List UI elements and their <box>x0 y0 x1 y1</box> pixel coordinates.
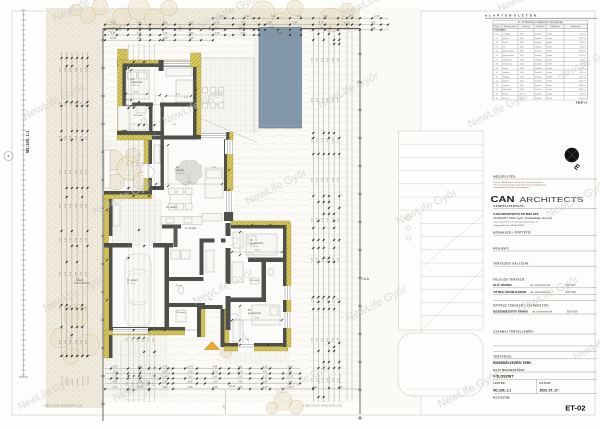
svg-text:4,86: 4,86 <box>111 27 116 30</box>
svg-text:DÁTUM:: DÁTUM: <box>540 382 552 385</box>
svg-text:12,70: 12,70 <box>237 371 244 374</box>
svg-text:nappali: nappali <box>176 169 184 172</box>
svg-text:gyerekszoba: gyerekszoba <box>503 50 515 53</box>
svg-text:oldalkert: oldalkert <box>76 378 79 386</box>
svg-text:12,70: 12,70 <box>187 366 194 369</box>
svg-text:4,05: 4,05 <box>137 37 142 40</box>
svg-text:2,35: 2,35 <box>113 376 118 379</box>
svg-text:4,05: 4,05 <box>163 386 168 389</box>
svg-text:Helyiség neve: Helyiség neve <box>504 26 516 28</box>
svg-text:12. étkező: 12. étkező <box>166 206 177 209</box>
svg-text:CAN: CAN <box>491 195 515 204</box>
svg-text:Falburkolat: Falburkolat <box>550 25 560 28</box>
svg-text:2,65 m²: 2,65 m² <box>580 93 587 96</box>
svg-text:08.: 08. <box>496 64 499 66</box>
svg-text:5,06 m²: 5,06 m² <box>580 33 587 36</box>
svg-text:laminált: laminált <box>535 41 542 44</box>
svg-text:3,00: 3,00 <box>520 85 524 87</box>
svg-text:laminált: laminált <box>535 45 542 48</box>
svg-text:festett: festett <box>547 63 553 66</box>
svg-text:laminált: laminált <box>535 50 542 53</box>
svg-text:HUNGARY 9021 Győr, Szabadsajtó: HUNGARY 9021 Győr, Szabadsajtó utca 2C <box>493 216 553 220</box>
svg-text:2,90: 2,90 <box>293 22 298 25</box>
svg-text:4,05: 4,05 <box>213 366 218 369</box>
svg-text:3,00: 3,00 <box>520 68 524 70</box>
svg-text:laminált: laminált <box>535 67 542 70</box>
svg-text:épülethatár: épülethatár <box>81 375 84 386</box>
svg-text:3,00: 3,00 <box>520 42 524 44</box>
svg-text:12,70: 12,70 <box>318 27 325 30</box>
svg-text:laminált: laminált <box>535 88 542 91</box>
svg-text:I A-A: I A-A <box>76 278 84 282</box>
svg-text:wc: wc <box>503 46 505 48</box>
svg-text:festett: festett <box>547 97 553 100</box>
svg-text:2,40: 2,40 <box>245 15 250 18</box>
svg-text:7,60: 7,60 <box>238 381 243 384</box>
svg-text:3,00: 3,00 <box>520 59 524 61</box>
svg-text:2,90: 2,90 <box>323 15 328 18</box>
svg-text:11,92 m²: 11,92 m² <box>579 80 587 83</box>
svg-text:festett: festett <box>547 67 553 70</box>
svg-text:laminált: laminált <box>535 58 542 61</box>
svg-text:06.: 06. <box>250 240 254 242</box>
svg-text:közlekedő: közlekedő <box>503 59 512 61</box>
svg-text:laminált: laminált <box>535 97 542 100</box>
svg-text:nappali: nappali <box>503 85 510 87</box>
svg-text:11. konyha: 11. konyha <box>185 228 197 230</box>
svg-text:laminált: laminált <box>535 84 542 87</box>
svg-text:ELŐ JÓZSEF: ELŐ JÓZSEF <box>493 282 512 287</box>
svg-text:12,70 m²: 12,70 m² <box>579 54 587 57</box>
svg-text:07.: 07. <box>496 59 499 61</box>
svg-text:7,60: 7,60 <box>188 376 193 379</box>
svg-text:05.: 05. <box>248 310 252 312</box>
svg-text:garázs: garázs <box>503 37 509 40</box>
svg-text:Sorsz.: Sorsz. <box>495 25 501 28</box>
svg-text:2,40: 2,40 <box>189 27 194 30</box>
svg-text:03. kazán: 03. kazán <box>176 312 186 314</box>
svg-text:4,05: 4,05 <box>188 381 193 384</box>
svg-text:fürdő: fürdő <box>503 67 507 70</box>
svg-text:I A-A: I A-A <box>362 277 370 281</box>
svg-text:gyerekszoba: gyerekszoba <box>503 54 515 57</box>
svg-text:12,70: 12,70 <box>344 22 351 25</box>
svg-text:15,25 m²: 15,25 m² <box>131 84 140 87</box>
svg-text:gyerekszoba: gyerekszoba <box>250 242 264 245</box>
svg-text:15,14: 15,14 <box>229 385 236 388</box>
svg-text:Terv és annak bármely része cs: Terv és annak bármely része csak írásos … <box>493 184 546 187</box>
svg-text:1,40: 1,40 <box>313 386 318 389</box>
svg-text:3,00: 3,00 <box>520 46 524 48</box>
svg-text:laminált: laminált <box>535 33 542 36</box>
svg-text:festett: festett <box>547 41 553 44</box>
svg-text:4,05: 4,05 <box>113 381 118 384</box>
svg-text:szélfogó: szélfogó <box>503 34 510 36</box>
svg-text:148,87 m²: 148,87 m² <box>576 100 588 104</box>
svg-text:7,60: 7,60 <box>241 22 246 25</box>
svg-text:4,05: 4,05 <box>288 366 293 369</box>
svg-text:12,70: 12,70 <box>374 15 381 18</box>
svg-text:31,71 m²: 31,71 m² <box>579 37 587 40</box>
svg-text:PROJEKT:: PROJEKT: <box>493 246 509 250</box>
svg-text:16.: 16. <box>496 98 499 100</box>
svg-text:M1:100, 1:1: M1:100, 1:1 <box>25 130 30 153</box>
svg-text:5,85 m²: 5,85 m² <box>580 41 587 44</box>
svg-text:09. fürdő: 09. fürdő <box>134 114 143 117</box>
svg-text:okl. építészmérnök: okl. építészmérnök <box>532 310 553 313</box>
svg-text:1,40: 1,40 <box>215 32 220 35</box>
svg-text:fürdőszoba: fürdőszoba <box>503 63 513 66</box>
svg-text:4,05: 4,05 <box>371 22 376 25</box>
svg-text:2,40: 2,40 <box>163 32 168 35</box>
svg-text:06.: 06. <box>496 55 499 57</box>
svg-text:laminált: laminált <box>535 80 542 83</box>
svg-text:2,90: 2,90 <box>338 386 343 389</box>
svg-text:14.: 14. <box>496 89 499 91</box>
svg-text:4,86: 4,86 <box>137 22 142 25</box>
svg-text:1,40: 1,40 <box>213 376 218 379</box>
svg-text:4,05: 4,05 <box>263 371 268 374</box>
svg-text:festett: festett <box>547 50 553 53</box>
svg-text:festett: festett <box>547 37 553 40</box>
svg-text:festett: festett <box>547 45 553 48</box>
svg-text:konyha: konyha <box>503 76 510 78</box>
svg-text:laminált: laminált <box>535 75 542 78</box>
svg-text:10.: 10. <box>496 72 499 74</box>
svg-text:1 DÉLNYUGATI HOMLOKZAT 1:100: 1 DÉLNYUGATI HOMLOKZAT 1:100 <box>303 405 343 408</box>
svg-text:ET-02: ET-02 <box>565 404 585 413</box>
svg-text:laminált: laminált <box>535 37 542 40</box>
svg-text:4,05: 4,05 <box>189 22 194 25</box>
svg-text:1,40: 1,40 <box>263 381 268 384</box>
svg-text:festett: festett <box>547 58 553 61</box>
svg-text:Alapterület: Alapterület <box>571 25 581 28</box>
svg-text:2,35: 2,35 <box>213 386 218 389</box>
svg-text:M1:100, 1:1: M1:100, 1:1 <box>493 388 511 392</box>
svg-text:25,45 m²: 25,45 m² <box>579 84 587 87</box>
svg-text:2,35: 2,35 <box>263 366 268 369</box>
svg-text:2,40: 2,40 <box>263 386 268 389</box>
svg-text:Burkolat: Burkolat <box>537 25 544 28</box>
svg-text:laminált: laminált <box>535 63 542 66</box>
svg-text:festett: festett <box>547 54 553 57</box>
svg-text:festett: festett <box>547 80 553 83</box>
svg-text:01. garázs: 01. garázs <box>127 279 139 282</box>
svg-text:telekhatár: telekhatár <box>87 377 90 386</box>
svg-text:www.canarchitects.hu office@: www.canarchitects.hu office@canarchitect… <box>493 221 539 224</box>
svg-text:használható fel! Minden jog fe: használható fel! Minden jog fenntartva! <box>493 186 529 189</box>
svg-text:festett: festett <box>547 84 553 87</box>
svg-text:15.: 15. <box>496 94 499 96</box>
svg-text:12,70: 12,70 <box>110 37 117 40</box>
svg-text:4,70: 4,70 <box>213 371 218 374</box>
svg-text:4,05: 4,05 <box>137 32 142 35</box>
svg-text:4,86: 4,86 <box>163 37 168 40</box>
svg-text:RAJZSZÁM:: RAJZSZÁM: <box>493 396 510 399</box>
svg-text:1 DÉLNYUGATI HOMLOKZAT 1:100: 1 DÉLNYUGATI HOMLOKZAT 1:100 <box>43 405 83 408</box>
svg-text:É06 0609: É06 0609 <box>566 291 577 294</box>
svg-text:2,16 m²: 2,16 m² <box>580 45 587 48</box>
svg-text:11,94 m²: 11,94 m² <box>250 245 258 248</box>
svg-text:laminált: laminált <box>535 54 542 57</box>
svg-text:RAJZ MEGNEVEZÉSE:: RAJZ MEGNEVEZÉSE: <box>493 369 525 372</box>
svg-text:É06-0658: É06-0658 <box>567 310 578 313</box>
svg-text:7,60: 7,60 <box>138 371 143 374</box>
svg-text:laminált: laminált <box>535 93 542 96</box>
svg-text:4,70: 4,70 <box>263 376 268 379</box>
svg-text:4,86: 4,86 <box>238 366 243 369</box>
svg-text:Belmag.: Belmag. <box>523 26 530 28</box>
svg-text:2,35: 2,35 <box>163 22 168 25</box>
svg-text:laminált: laminált <box>535 71 542 74</box>
svg-text:4,86: 4,86 <box>188 386 193 389</box>
svg-text:2,90: 2,90 <box>138 366 143 369</box>
svg-text:festett: festett <box>547 71 553 74</box>
svg-text:A terv a CAN Architects Studio: A terv a CAN Architects Studio Kft. szel… <box>493 181 544 184</box>
svg-text:05.: 05. <box>496 51 499 53</box>
svg-text:01.: 01. <box>496 34 499 36</box>
svg-text:4,70: 4,70 <box>319 22 324 25</box>
svg-text:2,35: 2,35 <box>137 27 142 30</box>
svg-text:3,00: 3,00 <box>520 76 524 78</box>
svg-text:1,40: 1,40 <box>297 15 302 18</box>
svg-text:festett: festett <box>547 75 553 78</box>
svg-text:03.: 03. <box>496 42 499 44</box>
svg-text:13.: 13. <box>496 85 499 87</box>
svg-text:02.: 02. <box>496 38 499 40</box>
svg-text:festett: festett <box>547 93 553 96</box>
svg-text:1,40: 1,40 <box>113 366 118 369</box>
svg-text:festett: festett <box>547 33 553 36</box>
svg-text:ENGEDÉLYEZÉSI TERV: ENGEDÉLYEZÉSI TERV <box>493 360 532 365</box>
svg-text:1,40: 1,40 <box>241 27 246 30</box>
svg-text:7,60: 7,60 <box>271 15 276 18</box>
svg-text:gyerekszoba: gyerekszoba <box>248 312 262 315</box>
svg-text:11,94 m²: 11,94 m² <box>579 50 587 53</box>
svg-text:3,00: 3,00 <box>520 55 524 57</box>
svg-text:étkező: étkező <box>503 80 509 83</box>
svg-text:3,00: 3,00 <box>520 64 524 66</box>
svg-text:FÖLDSZINT: FÖLDSZINT <box>495 29 507 32</box>
svg-text:2020. 07. 17.: 2020. 07. 17. <box>540 388 559 392</box>
svg-text:2,40: 2,40 <box>213 381 218 384</box>
svg-text:A L A P T E R Ü L E T E K: A L A P T E R Ü L E T E K <box>485 14 537 18</box>
svg-text:TÁTRAI ÁDÁM GÁBOR: TÁTRAI ÁDÁM GÁBOR <box>493 289 527 294</box>
svg-text:15,25 m²: 15,25 m² <box>579 88 587 91</box>
svg-text:12.: 12. <box>496 81 499 83</box>
svg-text:2,35: 2,35 <box>111 32 116 35</box>
svg-text:12,70: 12,70 <box>287 376 294 379</box>
svg-text:7,60: 7,60 <box>215 27 220 30</box>
svg-text:2,90: 2,90 <box>188 371 193 374</box>
svg-text:M - 01 földszintes családi ház: M - 01 földszintes családi ház helyiségl… <box>518 21 564 24</box>
svg-text:gardrób: gardrób <box>503 71 510 74</box>
svg-text:2,35: 2,35 <box>189 37 194 40</box>
svg-text:4,05: 4,05 <box>163 27 168 30</box>
svg-text:04. wc: 04. wc <box>176 285 183 287</box>
svg-text:4,70: 4,70 <box>113 386 118 389</box>
svg-text:3,00: 3,00 <box>520 34 524 36</box>
svg-text:4,86: 4,86 <box>288 371 293 374</box>
svg-text:09.: 09. <box>496 68 499 70</box>
svg-text:3,00: 3,00 <box>520 81 524 83</box>
svg-text:hálószoba: hálószoba <box>503 89 513 91</box>
svg-text:21,10 m²: 21,10 m² <box>579 97 587 100</box>
svg-text:3,00: 3,00 <box>520 51 524 53</box>
svg-text:4,05: 4,05 <box>270 27 275 30</box>
svg-text:4,05: 4,05 <box>345 27 350 30</box>
svg-text:4,05: 4,05 <box>238 386 243 389</box>
svg-text:hálószoba: hálószoba <box>131 81 143 84</box>
svg-text:10,35 m²: 10,35 m² <box>579 75 587 78</box>
svg-text:4,05: 4,05 <box>278 32 283 35</box>
svg-text:2,90: 2,90 <box>238 376 243 379</box>
svg-text:4,86: 4,86 <box>371 27 376 30</box>
svg-text:31,71 m²: 31,71 m² <box>127 282 136 285</box>
svg-text:cégjegyzékszám: 08-09-029835: cégjegyzékszám: 08-09-029835 <box>493 225 525 227</box>
svg-text:1,40: 1,40 <box>267 22 272 25</box>
svg-text:2,40: 2,40 <box>113 371 118 374</box>
svg-text:3,00: 3,00 <box>520 38 524 40</box>
svg-text:festett: festett <box>547 88 553 91</box>
svg-text:7,60: 7,60 <box>189 32 194 35</box>
svg-text:2,90: 2,90 <box>241 32 246 35</box>
svg-text:épülethatár: épülethatár <box>338 373 341 384</box>
svg-text:2,35: 2,35 <box>163 381 168 384</box>
svg-text:25,45 m²: 25,45 m² <box>176 172 185 175</box>
svg-text:kazán: kazán <box>503 42 508 44</box>
svg-text:3,00: 3,00 <box>520 72 524 74</box>
svg-text:4,05: 4,05 <box>111 22 116 25</box>
svg-text:04.: 04. <box>496 46 499 48</box>
svg-text:oldalkert: oldalkert <box>328 376 331 384</box>
